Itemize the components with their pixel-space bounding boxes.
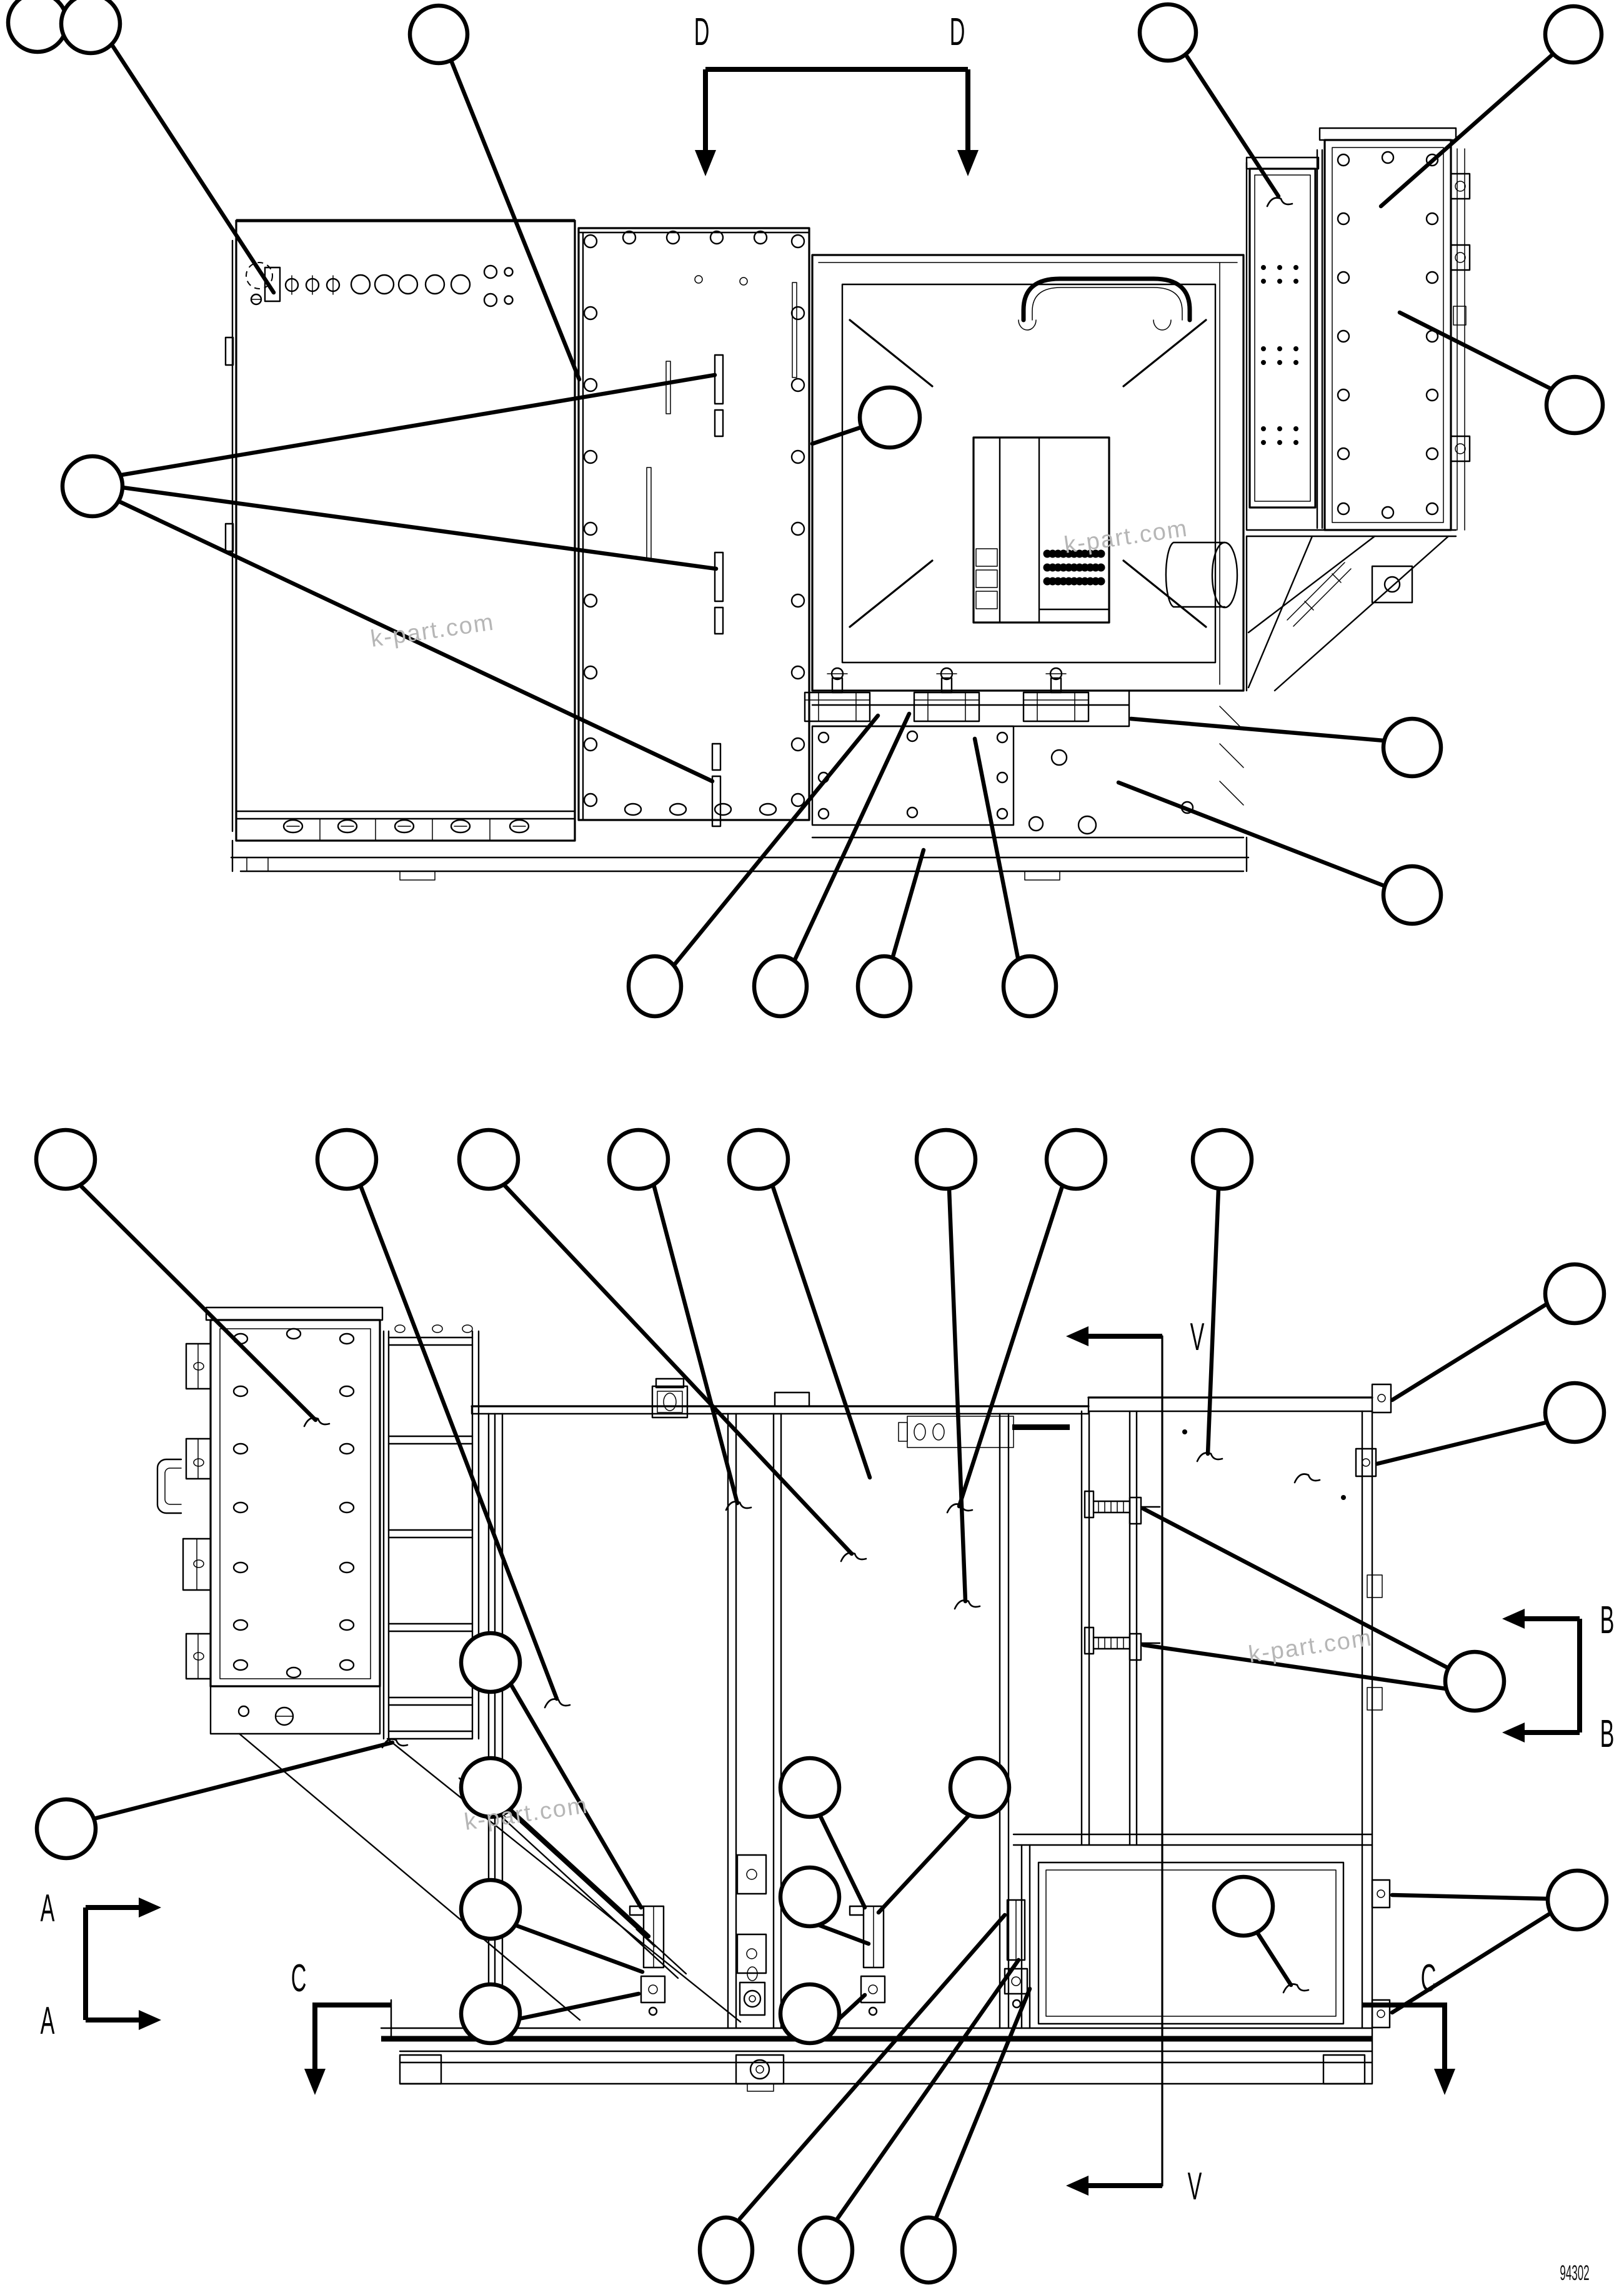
section-marker-a: A A — [41, 1886, 161, 2042]
door-latch — [1085, 1486, 1160, 1527]
callout-balloon — [1548, 1871, 1607, 1929]
section-label-d-right: D — [950, 10, 965, 53]
callout-balloon — [780, 1758, 839, 1817]
callout-balloon — [780, 1984, 839, 2043]
callout-balloon — [37, 1799, 96, 1858]
section-marker-v: V V — [1066, 1315, 1205, 2207]
callout-balloon — [317, 1130, 376, 1189]
section-arrow-right — [139, 2010, 161, 2030]
section-label-d-left: D — [694, 10, 710, 53]
callout-balloon — [1004, 956, 1056, 1016]
leader-end-curl — [955, 1601, 980, 1609]
section-arrow-left — [1066, 1326, 1088, 1346]
section-arrow-left — [1502, 1722, 1525, 1742]
callout-balloon — [1545, 1383, 1604, 1442]
leader-end-curl — [841, 1553, 866, 1562]
callout-balloon — [729, 1130, 788, 1189]
section-label-b-lower: B — [1600, 1712, 1615, 1755]
callout-balloon — [461, 1984, 520, 2043]
callout-balloon — [917, 1130, 975, 1189]
top-view-callouts — [8, 0, 1603, 1016]
top-view-right-unit — [1247, 128, 1470, 691]
callout-balloon — [1545, 1264, 1604, 1323]
door-latch — [1085, 1622, 1160, 1664]
section-label-b-upper: B — [1600, 1598, 1615, 1641]
bottom-view-leader-lines — [80, 1184, 1550, 2219]
section-label-v-bottom: V — [1188, 2164, 1202, 2207]
callout-balloon — [8, 0, 67, 52]
leader-end-curl — [1295, 1474, 1320, 1483]
latch-assembly — [805, 668, 870, 721]
latch-assembly — [914, 668, 979, 721]
top-view-main-body — [812, 255, 1243, 691]
callout-balloon — [1047, 1130, 1105, 1189]
callout-balloon — [1545, 6, 1602, 62]
leader-end-curl — [726, 1502, 751, 1511]
part-number: 94302 — [1560, 2261, 1589, 2285]
callout-balloon — [950, 1758, 1009, 1817]
callout-balloon — [1383, 866, 1441, 924]
section-arrow-down — [304, 2069, 326, 2095]
bottom-view-callouts — [36, 1130, 1607, 2282]
callout-balloon — [1445, 1652, 1504, 1711]
watermark: k-part.com — [369, 609, 496, 652]
callout-balloon — [1214, 1877, 1273, 1936]
callout-balloon — [1193, 1130, 1252, 1189]
door-latch — [850, 1906, 885, 2015]
latch-assembly — [1024, 668, 1088, 721]
callout-balloon — [754, 956, 807, 1016]
section-label-a-upper: A — [41, 1886, 55, 1929]
top-view-left-panel — [226, 221, 575, 841]
section-marker-b: B B — [1502, 1598, 1614, 1755]
leader-end-curl — [545, 1699, 570, 1708]
section-arrow-down — [695, 150, 716, 176]
section-marker-d: D D — [694, 10, 979, 176]
section-arrow-left — [1502, 1609, 1525, 1629]
watermark: k-part.com — [1062, 516, 1189, 559]
callout-balloon — [36, 1130, 95, 1189]
callout-balloon — [61, 0, 120, 53]
section-label-v-top: V — [1190, 1315, 1205, 1358]
section-arrow-right — [139, 1897, 161, 1917]
callout-balloon — [410, 6, 467, 63]
technical-diagram: D D — [0, 0, 1624, 2290]
leader-end-curl — [1267, 198, 1292, 207]
section-arrow-left — [1066, 2176, 1088, 2196]
bottom-view-cabinet — [381, 1379, 1391, 2091]
callout-balloon — [902, 2217, 955, 2282]
section-arrow-down — [1434, 2069, 1455, 2095]
callout-balloon — [459, 1130, 518, 1189]
watermark: k-part.com — [1247, 1625, 1373, 1668]
top-view-sub-assembly — [231, 668, 1248, 880]
diagram-page: D D — [0, 0, 1624, 2290]
top-view-leader-lines — [111, 44, 1553, 966]
callout-balloon — [700, 2217, 752, 2282]
callout-balloon — [609, 1130, 668, 1189]
callout-balloon — [800, 2217, 852, 2282]
callout-balloon — [461, 1633, 520, 1692]
leader-end-curl — [1283, 1984, 1308, 1993]
callout-balloon — [461, 1880, 520, 1939]
leader-end-curl — [304, 1418, 329, 1427]
callout-balloon — [780, 1867, 839, 1926]
top-view: D D — [8, 0, 1603, 1016]
callout-balloon — [1140, 4, 1196, 61]
bottom-view-radiator-unit — [157, 1307, 382, 1734]
callout-balloon — [62, 456, 122, 516]
section-label-c-left: C — [291, 1956, 307, 1999]
leader-end-curl — [1197, 1453, 1222, 1462]
callout-balloon — [860, 387, 920, 447]
section-label-a-lower: A — [41, 1999, 55, 2042]
section-arrow-down — [957, 150, 979, 176]
bottom-view: V V B B A A C C — [36, 1130, 1614, 2282]
callout-balloon — [858, 956, 910, 1016]
callout-balloon — [1547, 377, 1603, 433]
callout-balloon — [629, 956, 681, 1016]
callout-balloon — [1383, 719, 1441, 776]
